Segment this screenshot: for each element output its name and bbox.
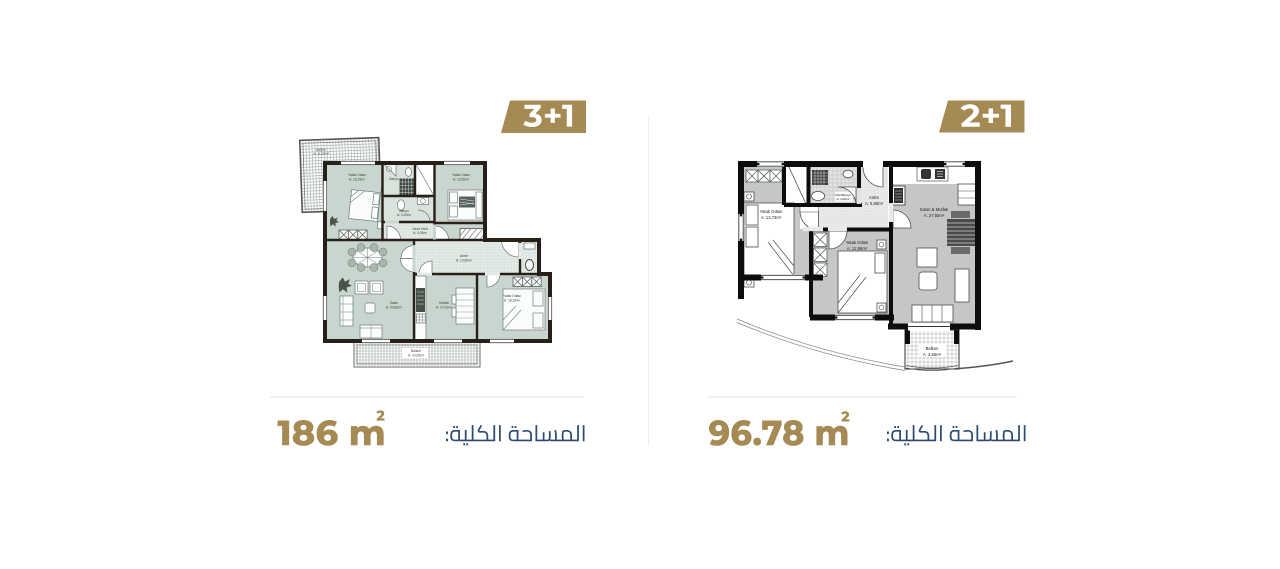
svg-text:Yatak Odası: Yatak Odası — [348, 173, 366, 177]
svg-text:Mutfak: Mutfak — [439, 301, 449, 305]
svg-text:A: 10,05m²: A: 10,05m² — [408, 354, 425, 358]
svg-text:A: 13,60m²: A: 13,60m² — [453, 178, 470, 182]
svg-text:A: 27,50m²: A: 27,50m² — [924, 213, 945, 218]
svg-text:A: 12,95m²: A: 12,95m² — [847, 246, 868, 251]
svg-text:A: 4,20m²: A: 4,20m² — [397, 213, 412, 217]
svg-text:Salon: Salon — [390, 301, 399, 305]
svg-text:A: 5,90m²: A: 5,90m² — [865, 201, 884, 206]
svg-text:Salon & Mutfak: Salon & Mutfak — [920, 207, 949, 212]
svg-text:Yatak Odası: Yatak Odası — [760, 209, 783, 214]
svg-text:Balkon: Balkon — [926, 346, 939, 351]
svg-text:Balkon: Balkon — [411, 349, 421, 353]
svg-text:A: 14,10m²: A: 14,10m² — [436, 306, 453, 310]
svg-text:A: 3,55m²: A: 3,55m² — [923, 352, 942, 357]
svg-text:Yatak Odası: Yatak Odası — [452, 173, 470, 177]
svg-text:A: 18,15m²: A: 18,15m² — [504, 299, 521, 303]
svg-text:A: 16,25m²: A: 16,25m² — [349, 178, 366, 182]
svg-text:Banyo: Banyo — [389, 177, 399, 181]
svg-text:Yatak Odası: Yatak Odası — [846, 240, 869, 245]
svg-text:Antre: Antre — [869, 195, 880, 200]
svg-text:A: 13,80m²: A: 13,80m² — [456, 259, 473, 263]
svg-text:Antre: Antre — [460, 254, 468, 258]
svg-text:Yatak Odası: Yatak Odası — [503, 294, 521, 298]
svg-text:A: 13,73m²: A: 13,73m² — [761, 215, 782, 220]
svg-text:A: 11,26m²: A: 11,26m² — [313, 151, 328, 156]
svg-text:A: 4,00m²: A: 4,00m² — [836, 197, 849, 201]
svg-text:A: 4,05m²: A: 4,05m² — [413, 231, 428, 235]
svg-text:A: 33,80m²: A: 33,80m² — [386, 306, 403, 310]
